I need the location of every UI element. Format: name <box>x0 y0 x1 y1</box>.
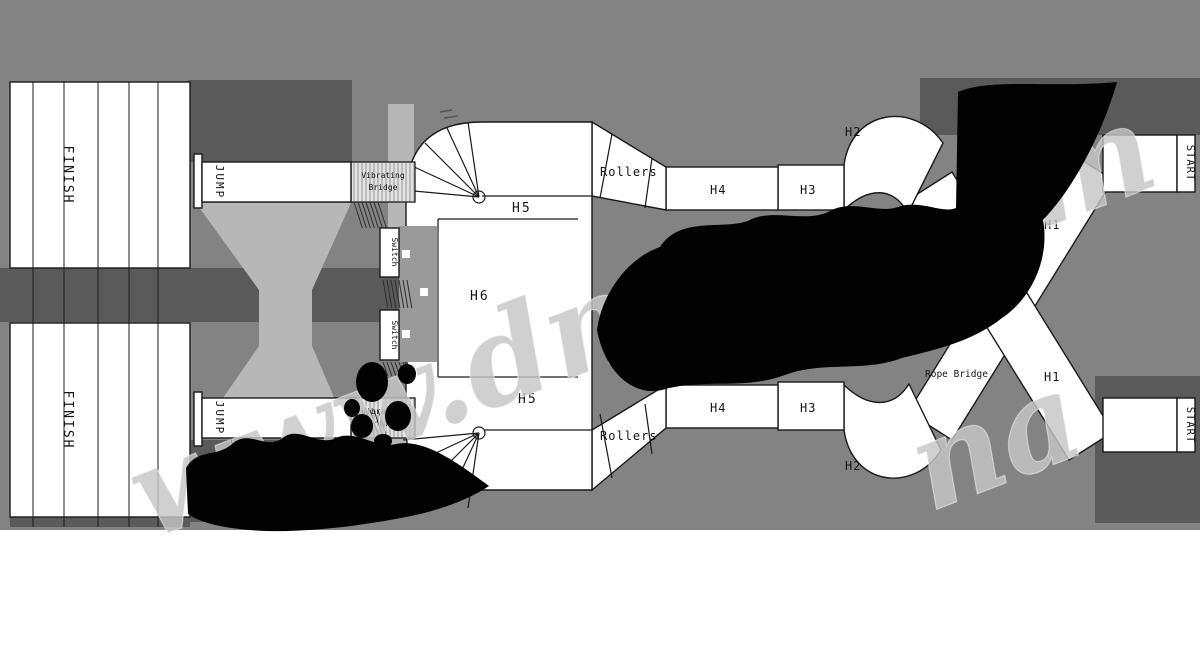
redaction-fragment <box>398 364 416 384</box>
jump-label-top: JUMP <box>213 165 226 200</box>
finish-zone-top <box>10 82 190 268</box>
h2-label-bottom: H2 <box>845 459 861 473</box>
start-label-top: START <box>1184 145 1196 182</box>
rollers-label-bottom: Rollers <box>600 429 658 443</box>
rollers-label-top: Rollers <box>600 165 658 179</box>
bridge-deck <box>351 162 415 202</box>
switch-label-upper: Switch <box>390 238 399 267</box>
h3-label-bottom: H3 <box>800 401 816 415</box>
start-label-bottom: START <box>1184 407 1196 444</box>
h4-label-bottom: H4 <box>710 401 726 415</box>
course-diagram: FINISH FINISH JUMP JUMP START START Vibr… <box>0 0 1200 650</box>
dark-zone-top-left <box>188 80 352 162</box>
redaction-fragment <box>385 401 411 431</box>
finish-label-top: FINISH <box>60 146 75 205</box>
jump-board <box>194 154 202 208</box>
vibrating-bridge-label-top-2: Bridge <box>369 183 398 192</box>
h5-label-top: H5 <box>512 201 532 216</box>
switch-dot <box>420 288 428 296</box>
redaction-fragment <box>351 414 373 438</box>
redaction-fragment <box>374 434 392 448</box>
h3-label-top: H3 <box>800 183 816 197</box>
light-funnel-waist <box>259 290 312 346</box>
switch-dot <box>402 250 410 258</box>
redaction-fragment <box>356 362 388 402</box>
start-pad <box>1103 398 1177 452</box>
vibrating-bridge-top <box>351 162 415 202</box>
dark-zone-mid-left <box>0 268 418 322</box>
finish-label-bottom: FINISH <box>60 391 75 450</box>
redaction-fragment <box>344 399 360 417</box>
h2-label-top: H2 <box>845 125 861 139</box>
start-bottom <box>1103 398 1195 452</box>
vibrating-bridge-label-top-1: Vibrating <box>361 171 405 180</box>
